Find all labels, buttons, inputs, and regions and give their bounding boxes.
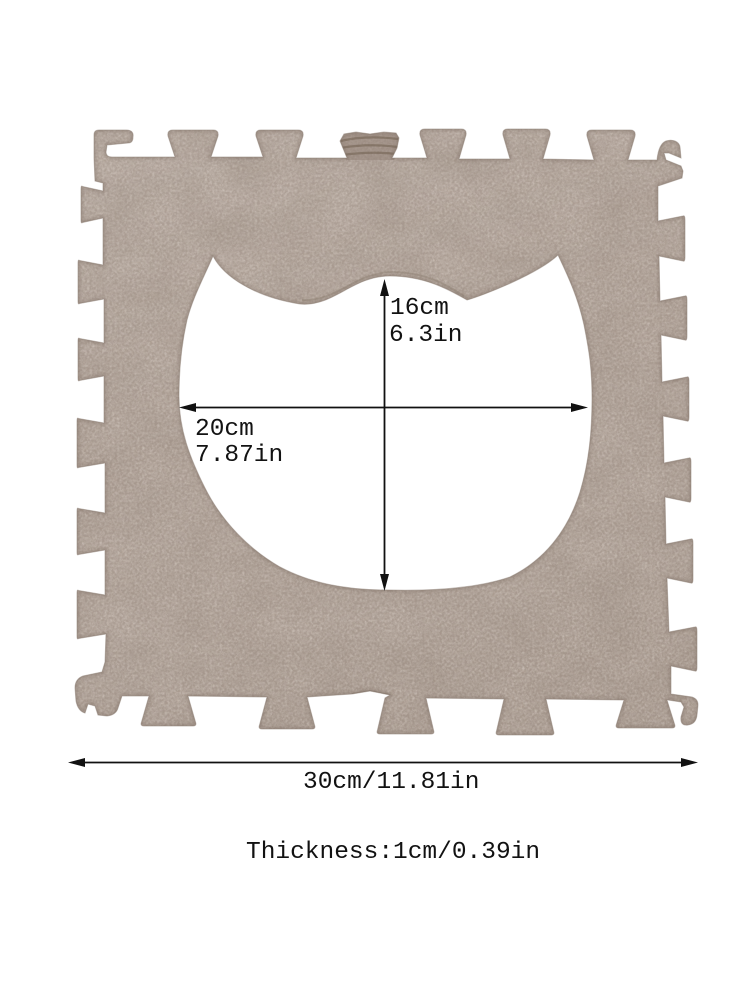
- svg-text:20cm: 20cm: [195, 416, 254, 443]
- svg-text:30cm/11.81in: 30cm/11.81in: [303, 769, 479, 796]
- svg-text:Thickness:1cm/0.39in: Thickness:1cm/0.39in: [246, 839, 540, 866]
- svg-text:6.3in: 6.3in: [389, 322, 463, 349]
- svg-text:16cm: 16cm: [390, 295, 449, 322]
- svg-text:7.87in: 7.87in: [195, 442, 283, 469]
